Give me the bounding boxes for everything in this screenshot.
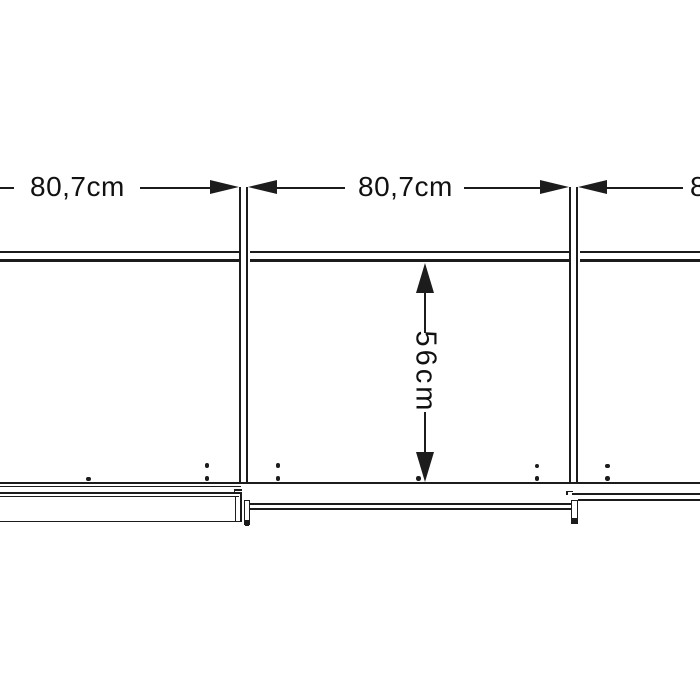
technical-drawing-canvas: 80,7cm 80,7cm 80,7cm 56cm — [0, 0, 700, 700]
top-panel-outer-line — [580, 251, 700, 253]
top-panel-inner-line — [0, 259, 239, 262]
dimension-line-segment — [276, 187, 345, 189]
dimension-arrowhead-right — [210, 180, 239, 194]
partition-line — [569, 187, 571, 483]
door-bottom-edge — [0, 521, 240, 523]
drill-hole-dot — [276, 463, 281, 468]
top-panel-inner-line — [580, 259, 700, 262]
door-inner-frame-line — [235, 496, 236, 521]
dimension-arrowhead-left — [578, 180, 607, 194]
drill-hole-dot — [416, 476, 421, 481]
door-bottom-edge — [250, 508, 572, 510]
partition-line — [246, 187, 248, 483]
door-top-inner-line — [0, 496, 239, 497]
width-dimension-label-3: 80,7cm — [690, 172, 700, 202]
door-top-edge — [572, 493, 700, 496]
top-panel-outer-line — [250, 251, 569, 253]
front-edge-line — [0, 482, 700, 484]
dimension-line-segment — [424, 412, 426, 453]
top-panel-inner-line — [250, 259, 569, 262]
width-dimension-label-2: 80,7cm — [358, 172, 448, 202]
dimension-line-segment — [140, 187, 211, 189]
dimension-line-segment — [0, 187, 14, 189]
dimension-line-segment — [464, 187, 541, 189]
width-dimension-label-1: 80,7cm — [30, 172, 118, 202]
door-step-line — [566, 491, 568, 496]
door-top-edge — [0, 492, 242, 494]
door-bottom-edge — [578, 499, 700, 501]
drill-hole-dot — [605, 464, 610, 469]
dimension-arrowhead-left — [248, 180, 277, 194]
drill-hole-dot — [276, 476, 281, 481]
partition-line — [239, 187, 241, 483]
dimension-line-segment — [424, 292, 426, 333]
partition-line — [576, 187, 578, 483]
front-edge-line-left — [0, 486, 241, 488]
drill-hole-dot — [205, 463, 210, 468]
dimension-arrowhead-right — [540, 180, 569, 194]
dimension-line-segment — [606, 187, 683, 189]
door-handle-profile-foot — [572, 518, 577, 524]
drill-hole-dot — [535, 464, 540, 469]
door-end-edge — [240, 492, 242, 523]
door-handle-profile-foot — [245, 520, 250, 526]
drill-hole-dot — [205, 476, 210, 481]
drill-hole-dot — [86, 477, 91, 482]
dimension-arrowhead-up — [416, 263, 434, 293]
depth-dimension-label: 56cm — [409, 331, 442, 414]
drill-hole-dot — [535, 476, 540, 481]
top-panel-outer-line — [0, 251, 239, 253]
drill-hole-dot — [605, 476, 610, 481]
door-top-edge — [250, 503, 572, 505]
